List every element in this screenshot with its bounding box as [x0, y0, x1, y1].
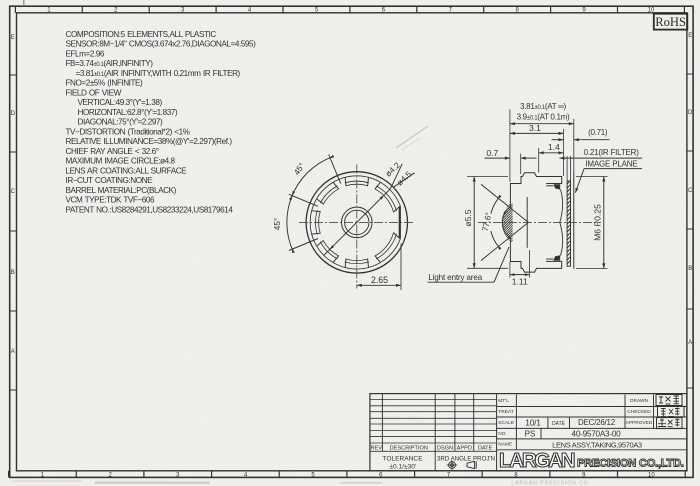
- svg-text:DSGN: DSGN: [437, 446, 453, 452]
- svg-text:C: C: [688, 188, 693, 194]
- svg-text:0.21(IR FILTER): 0.21(IR FILTER): [584, 148, 640, 157]
- svg-text:PATENT NO.:US8284291,US8233224: PATENT NO.:US8284291,US8233224,US8179614: [66, 205, 234, 214]
- svg-text:RoHS: RoHS: [655, 15, 686, 29]
- svg-text:ø5.5: ø5.5: [463, 209, 473, 226]
- svg-text:NAME: NAME: [498, 442, 512, 448]
- svg-text:APPROVED: APPROVED: [626, 420, 653, 426]
- svg-text:COMPOSITION:5 ELEMENTS,ALL PLA: COMPOSITION:5 ELEMENTS,ALL PLASTIC: [66, 30, 217, 39]
- svg-text:1.11: 1.11: [512, 276, 528, 286]
- svg-text:A: A: [11, 349, 15, 355]
- svg-text:A: A: [688, 340, 692, 346]
- svg-text:±0.1/±30': ±0.1/±30': [389, 463, 416, 470]
- svg-text:3.9±0.1(AT 0.1m): 3.9±0.1(AT 0.1m): [517, 112, 570, 121]
- svg-text:PRECISION CO.,LTD.: PRECISION CO.,LTD.: [577, 458, 684, 470]
- svg-text:Light entry area: Light entry area: [428, 273, 482, 282]
- svg-text:NO.: NO.: [498, 431, 507, 437]
- svg-text:TV−DISTORTION (Traditional*2): TV−DISTORTION (Traditional*2) <1%: [66, 127, 190, 136]
- svg-text:40-9570A3-00: 40-9570A3-00: [572, 430, 622, 439]
- svg-text:PS: PS: [525, 429, 536, 438]
- svg-text:DATE: DATE: [552, 421, 566, 427]
- svg-text:FIELD OF VIEW: FIELD OF VIEW: [66, 88, 122, 97]
- svg-text:10: 10: [648, 7, 655, 13]
- svg-text:REV: REV: [370, 446, 382, 452]
- svg-text:SCALE: SCALE: [498, 420, 514, 426]
- svg-text:DESCRIPTION: DESCRIPTION: [390, 446, 428, 452]
- svg-text:3RD ANGLE PROJ'N: 3RD ANGLE PROJ'N: [437, 455, 495, 462]
- svg-text:E: E: [688, 33, 692, 39]
- svg-text:D: D: [11, 111, 16, 117]
- svg-text:TOLERANCE: TOLERANCE: [382, 456, 423, 463]
- svg-text:3.1: 3.1: [529, 123, 541, 133]
- svg-text:FNO=2±5% (INFINITE): FNO=2±5% (INFINITE): [66, 79, 144, 88]
- svg-text:10/1: 10/1: [525, 418, 541, 428]
- svg-text:DIAGONAL:75°(Y'=2.297): DIAGONAL:75°(Y'=2.297): [78, 118, 164, 127]
- svg-text:E: E: [11, 35, 15, 41]
- svg-text:D: D: [688, 110, 693, 116]
- svg-text:RELATIVE ILLUMINANCE=38%(@Y'=2: RELATIVE ILLUMINANCE=38%(@Y'=2.297)(Ref.…: [66, 137, 233, 146]
- svg-text:M6 P0.25: M6 P0.25: [593, 204, 603, 241]
- svg-text:B: B: [688, 266, 692, 272]
- svg-text:LARGAN PRECISION CO: LARGAN PRECISION CO: [511, 481, 588, 486]
- svg-text:MT'L: MT'L: [498, 398, 509, 404]
- svg-text:IR−CUT COATING:NONE: IR−CUT COATING:NONE: [66, 176, 154, 185]
- svg-text:DATE: DATE: [478, 446, 493, 452]
- svg-text:FB=3.74±0.1(AIR,INFINITY): FB=3.74±0.1(AIR,INFINITY): [66, 59, 154, 68]
- svg-text:MAXIMUM IMAGE CIRCLE:ø4.8: MAXIMUM IMAGE CIRCLE:ø4.8: [66, 157, 176, 166]
- svg-text:APPD: APPD: [457, 446, 472, 452]
- svg-text:10: 10: [648, 472, 655, 478]
- svg-text:B: B: [11, 270, 15, 276]
- svg-text:0.7: 0.7: [486, 148, 498, 158]
- svg-text:CHECKED: CHECKED: [627, 409, 651, 415]
- svg-text:LARGAN: LARGAN: [499, 449, 575, 472]
- svg-text:45°: 45°: [273, 218, 282, 230]
- svg-text:BARREL MATERIAL:PC(BLACK): BARREL MATERIAL:PC(BLACK): [66, 186, 177, 195]
- svg-text:VERTICAL:49.3°(Y'=1.38): VERTICAL:49.3°(Y'=1.38): [78, 98, 163, 107]
- svg-text:HORIZONTAL:62.8°(Y'=1.837): HORIZONTAL:62.8°(Y'=1.837): [78, 108, 178, 117]
- svg-text:DRAWN: DRAWN: [630, 398, 648, 404]
- svg-text:LENS AR COATING:ALL SURFACE: LENS AR COATING:ALL SURFACE: [66, 166, 188, 175]
- svg-text:C: C: [11, 189, 16, 195]
- svg-text:DEC/26/12: DEC/26/12: [578, 418, 616, 427]
- svg-text:SENSOR:8M−1/4" CMOS(3.674x2.76: SENSOR:8M−1/4" CMOS(3.674x2.76,DIAGONAL=…: [66, 40, 257, 49]
- svg-text:(0.71): (0.71): [588, 128, 608, 137]
- svg-text:2.65: 2.65: [371, 275, 388, 285]
- svg-text:EFLm=2.96: EFLm=2.96: [66, 49, 105, 58]
- svg-text:VCM TYPE:TDK TVF−606: VCM TYPE:TDK TVF−606: [66, 196, 155, 205]
- svg-text:IMAGE PLANE: IMAGE PLANE: [585, 160, 637, 169]
- svg-text:TREAT: TREAT: [498, 409, 513, 415]
- svg-text:1.4: 1.4: [548, 142, 560, 152]
- svg-text:CHIEF RAY ANGLE < 32.6°: CHIEF RAY ANGLE < 32.6°: [66, 147, 159, 156]
